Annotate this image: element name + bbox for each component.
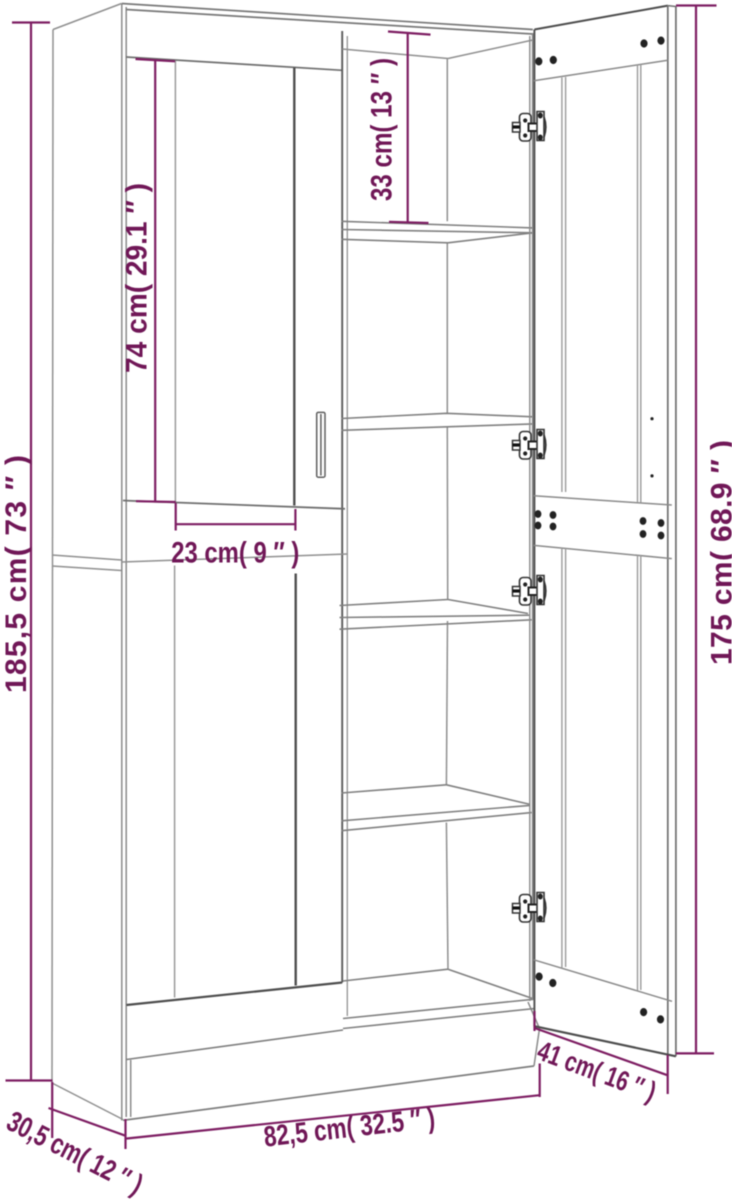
svg-text:82,5 cm( 32.5 ″ ): 82,5 cm( 32.5 ″ ): [262, 1102, 437, 1153]
svg-text:33 cm( 13 ″ ): 33 cm( 13 ″ ): [366, 58, 399, 201]
svg-text:41 cm( 16 ″ ): 41 cm( 16 ″ ): [533, 1035, 660, 1107]
svg-text:185,5 cm( 73 ″ ): 185,5 cm( 73 ″ ): [0, 455, 33, 693]
svg-text:74 cm( 29.1 ″ ): 74 cm( 29.1 ″ ): [121, 183, 154, 373]
svg-text:23 cm( 9 ″ ): 23 cm( 9 ″ ): [171, 537, 299, 570]
svg-text:175 cm( 68.9 ″ ): 175 cm( 68.9 ″ ): [706, 440, 732, 665]
